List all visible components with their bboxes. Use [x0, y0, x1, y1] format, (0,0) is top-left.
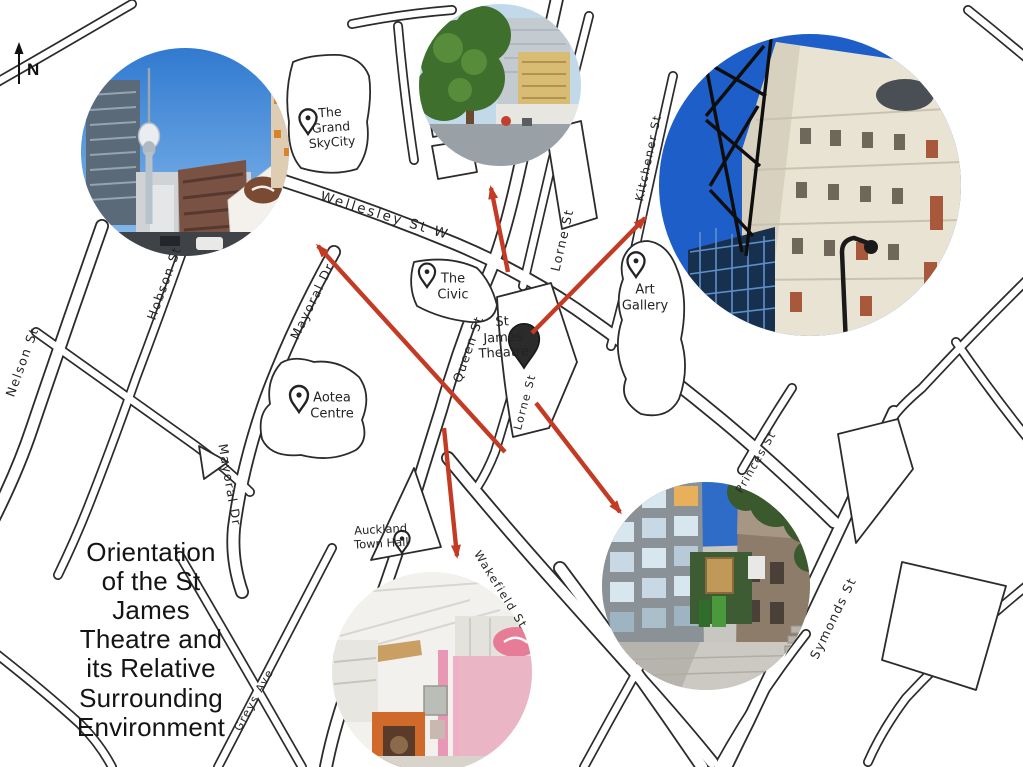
- photo-inset-sky-tower: [75, 42, 298, 264]
- art-gallery-block: [618, 241, 685, 415]
- arrow-to-lorne-st-photo: [536, 403, 620, 512]
- landmark-label-aotea-centre: Aotea Centre: [310, 390, 353, 421]
- photo-inset-st-james-building: [659, 30, 963, 345]
- page-title: Orientation of the St James Theatre and …: [62, 538, 240, 742]
- arrow-to-laneway-photo: [444, 428, 457, 556]
- landmark-label-grand-skycity: The Grand SkyCity: [306, 103, 356, 151]
- landmark-label-st-james-theatre: St James Theatre: [477, 313, 530, 362]
- landmark-label-the-civic: The Civic: [437, 271, 468, 302]
- map-canvas: N Wellesley St W Hobson St Nelson St May…: [0, 0, 1023, 767]
- landmark-label-auckland-town-hall: Auckland Town Hall: [353, 522, 409, 552]
- photo-inset-lorne-st-buildings: [600, 473, 829, 692]
- compass-north-label: N: [27, 60, 39, 80]
- landmark-label-art-gallery: Art Gallery: [622, 282, 668, 313]
